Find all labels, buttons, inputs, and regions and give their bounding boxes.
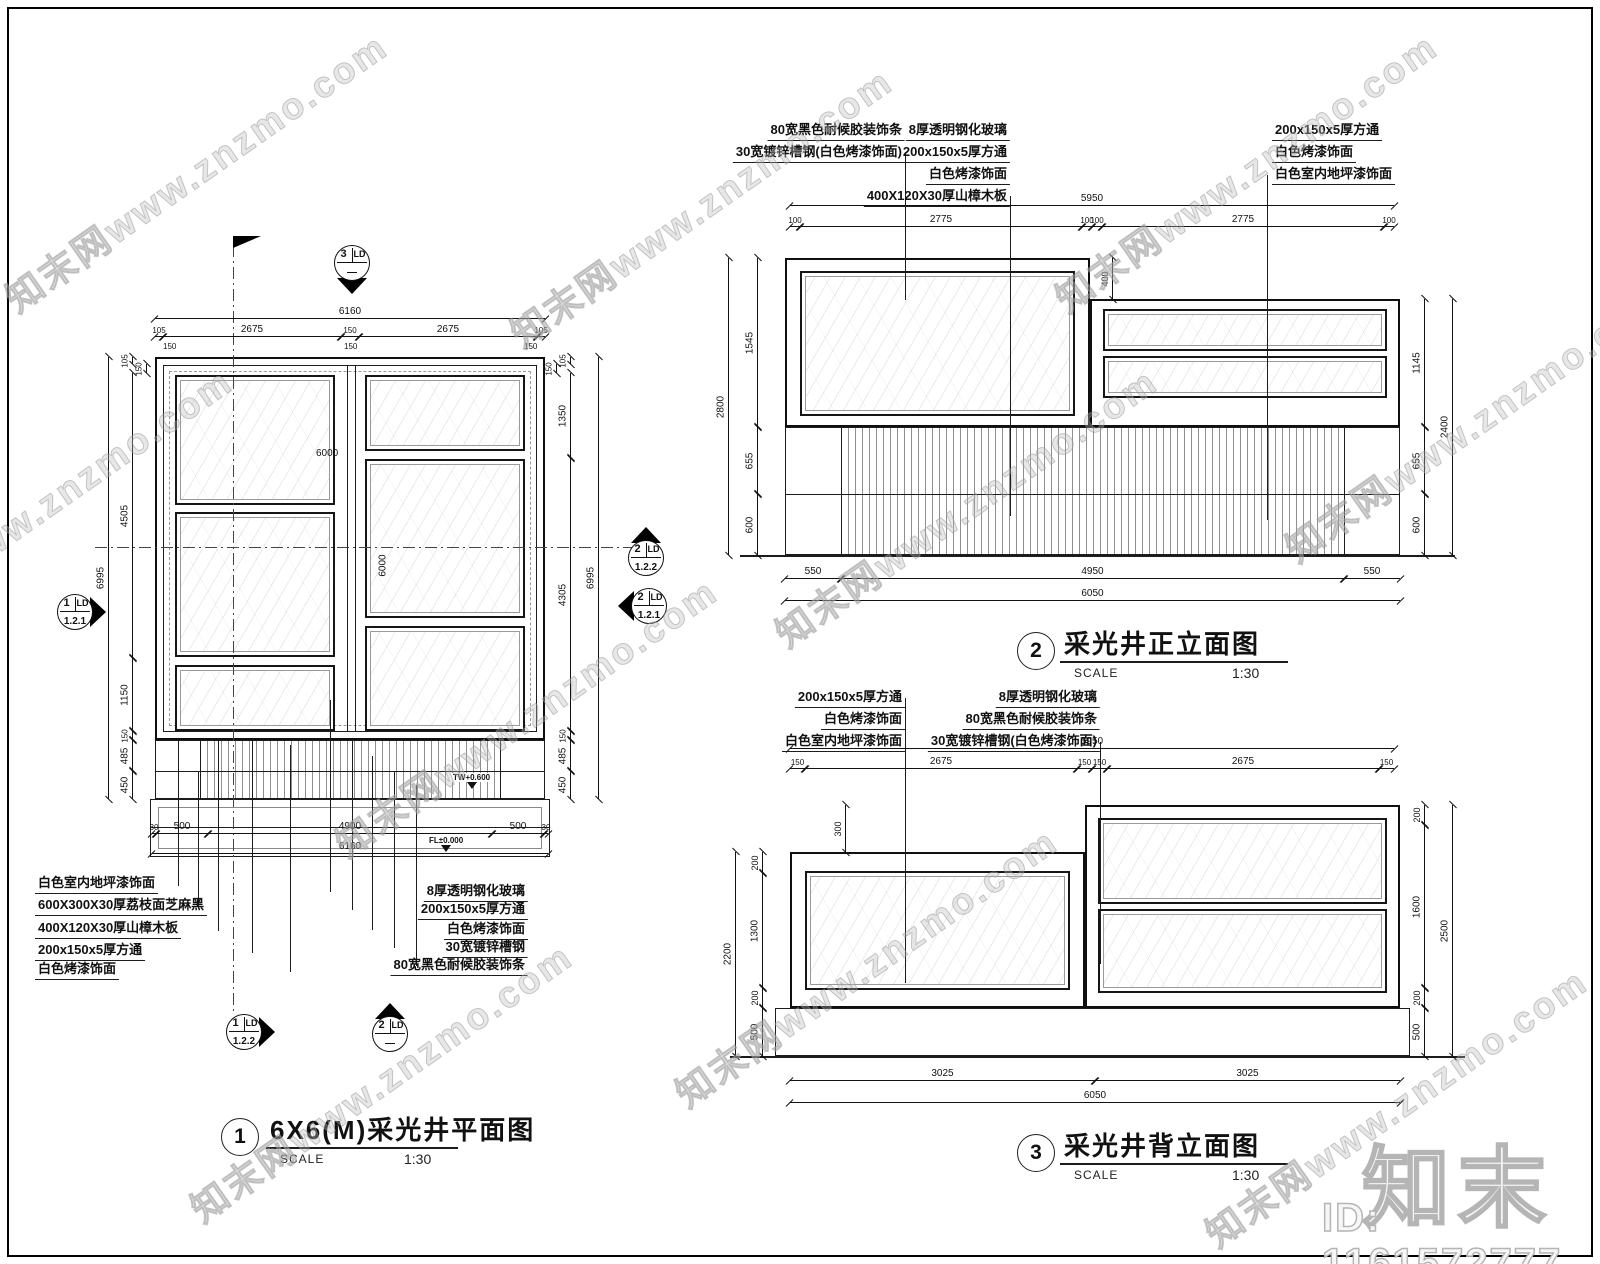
dim-text: 2500 <box>1440 919 1451 941</box>
glass-panel <box>175 512 335 657</box>
title-number-circle: 3 <box>1017 1134 1055 1172</box>
dim-text: 485 <box>558 747 569 764</box>
dim-text: 150 <box>791 758 804 767</box>
dimension-v: 1545 <box>757 258 758 427</box>
leader-line <box>355 365 356 732</box>
leader-line <box>198 771 199 908</box>
dim-text: 105 <box>534 326 547 335</box>
callout-label: 400X120X30厚山樟木板 <box>35 917 181 939</box>
dimension-h: 2675 <box>359 336 537 337</box>
level-triangle-icon <box>441 845 451 852</box>
dimension-v: 2400 <box>1452 299 1453 555</box>
dimension-h: 500 <box>492 833 544 834</box>
callout-label: 30宽镀锌槽钢(白色烤漆饰面) <box>733 141 905 163</box>
dim-text: 500 <box>750 1024 761 1041</box>
annotation-text: 6000 <box>316 448 338 459</box>
dimension-v: 200 <box>762 852 763 873</box>
dim-text: 150 <box>135 362 144 375</box>
callout-label: 400X120X30厚山樟木板 <box>864 185 1010 207</box>
callout-label: 600X300X30厚荔枝面芝麻黑 <box>35 894 207 916</box>
scale-label: SCALE <box>280 1152 324 1166</box>
dim-text: 150 <box>1078 758 1091 767</box>
marker-circle: 2LD— <box>372 1016 408 1052</box>
callout-label: 白色室内地坪漆饰面 <box>1272 163 1395 185</box>
leader-line <box>200 740 201 799</box>
leader-line <box>290 745 291 972</box>
dim-text: 4505 <box>120 504 131 526</box>
scale-label: SCALE <box>1074 666 1118 680</box>
level-marker: FL±0.000 <box>428 836 464 852</box>
outline-rect <box>155 740 545 799</box>
dimension-v: 2200 <box>735 852 736 1056</box>
dim-text: 150 <box>343 326 356 335</box>
title-number-circle: 1 <box>221 1118 259 1156</box>
dimension-h: 4950 <box>841 578 1344 579</box>
title-underline <box>1060 661 1288 663</box>
glass-panel <box>805 871 1070 990</box>
section-marker: 1LD1.2.1 <box>57 594 93 630</box>
leader-line <box>252 740 253 953</box>
outline-rect <box>775 1008 1410 1056</box>
dim-text: 2775 <box>1232 214 1254 225</box>
dim-text: 655 <box>745 452 756 469</box>
dim-text: 100 <box>1090 216 1103 225</box>
leader-line <box>841 427 842 555</box>
scale-value: 1:30 <box>1232 665 1259 681</box>
callout-label: 8厚透明钢化玻璃 <box>906 119 1010 141</box>
dimension-v: 600 <box>757 494 758 555</box>
dimension-v: 2800 <box>728 258 729 555</box>
dim-text: 2675 <box>241 324 263 335</box>
dim-text: 2200 <box>723 943 734 965</box>
dim-text: 500 <box>510 821 527 832</box>
dimension-h: 2775 <box>800 226 1082 227</box>
glass-panel <box>1103 309 1387 351</box>
callout-label: 白色烤漆饰面 <box>821 708 905 730</box>
dimension-v: 6995 <box>598 357 599 799</box>
dimension-h: 550 <box>1344 578 1400 579</box>
level-marker: TW+0.600 <box>452 773 491 789</box>
dim-text: 400 <box>1100 271 1110 286</box>
glass-panel <box>365 626 525 731</box>
callout-label: 80宽黑色耐候胶装饰条 <box>391 954 528 976</box>
section-marker: 2LD1.2.2 <box>628 540 664 576</box>
dimension-v: 150 <box>556 364 557 373</box>
dimension-v: 450 <box>570 771 571 799</box>
dimension-v: 1350 <box>570 373 571 458</box>
dim-text: 6995 <box>586 567 597 589</box>
drawing-title: 采光井背立面图 <box>1064 1126 1260 1163</box>
dim-text: 1150 <box>120 684 131 706</box>
flag-icon <box>233 236 261 248</box>
dim-text: 150 <box>1380 758 1393 767</box>
dimension-v: 105 <box>132 357 133 364</box>
dim-text: 2675 <box>1232 756 1254 767</box>
callout-label: 30宽镀锌槽钢(白色烤漆饰面) <box>928 730 1100 752</box>
dim-text: 485 <box>120 747 131 764</box>
glass-panel <box>800 271 1075 416</box>
dimension-h: 30 <box>544 833 548 834</box>
title-number-circle: 2 <box>1017 632 1055 670</box>
dim-text: 2675 <box>437 324 459 335</box>
outline-rect <box>785 427 1400 555</box>
dim-text: 2675 <box>930 756 952 767</box>
dim-text: 4900 <box>339 821 361 832</box>
dimension-v: 655 <box>1424 427 1425 494</box>
title-underline <box>1060 1163 1288 1165</box>
leader-line <box>1010 196 1011 516</box>
centerline <box>95 547 645 548</box>
dim-text: 4950 <box>1081 566 1103 577</box>
callout-label: 白色室内地坪漆饰面 <box>782 730 905 752</box>
marker-circle: 3LD— <box>334 245 370 281</box>
section-marker: 2LD— <box>372 1016 408 1052</box>
section-marker: 2LD1.2.1 <box>631 588 667 624</box>
dim-text: 30 <box>542 823 551 832</box>
dim-text: 150 <box>1093 758 1106 767</box>
dimension-v: 500 <box>762 1008 763 1056</box>
dimension-v: 1150 <box>132 658 133 731</box>
glass-panel <box>365 459 525 618</box>
dim-text: 100 <box>788 216 801 225</box>
dim-text: 6160 <box>339 306 361 317</box>
callout-label: 8厚透明钢化玻璃 <box>996 686 1100 708</box>
callout-label: 80宽黑色耐候胶装饰条 <box>768 119 905 141</box>
dimension-v: 1145 <box>1424 299 1425 427</box>
dim-text: 300 <box>833 821 843 836</box>
dim-text: 6160 <box>339 841 361 852</box>
dimension-v: 400 <box>1112 258 1113 299</box>
leader-line <box>1100 742 1101 964</box>
marker-circle: 1LD1.2.1 <box>57 594 93 630</box>
glass-panel <box>1103 356 1387 398</box>
dim-text: 6050 <box>1081 588 1103 599</box>
leader-line <box>178 740 179 886</box>
drawing-title: 6X6(M)采光井平面图 <box>270 1110 535 1147</box>
leader-line <box>155 771 545 772</box>
section-marker: 1LD1.2.2 <box>226 1014 262 1050</box>
dim-text: 1300 <box>750 919 761 941</box>
dim-text: 2400 <box>1440 416 1451 438</box>
dimension-h: 3025 <box>1095 1080 1400 1081</box>
leader-line <box>416 785 417 966</box>
dim-text: 3025 <box>1236 1068 1258 1079</box>
dimension-h: 6160 <box>155 318 545 319</box>
callout-label: 200x150x5厚方通 <box>418 898 528 920</box>
dimension-h: 550 <box>785 578 841 579</box>
dimension-v: 2500 <box>1452 805 1453 1056</box>
dimension-h: 100 <box>1384 226 1394 227</box>
callout-label: 200x150x5厚方通 <box>795 686 905 708</box>
dimension-v: 655 <box>757 427 758 494</box>
dimension-v: 500 <box>1424 1008 1425 1056</box>
dimension-h: 2775 <box>1102 226 1384 227</box>
dimension-v: 4305 <box>570 458 571 731</box>
callout-label: 200x150x5厚方通 <box>900 141 1010 163</box>
dimension-v: 1600 <box>1424 825 1425 988</box>
glass-panel <box>1098 818 1387 904</box>
dim-text: 105 <box>121 354 130 367</box>
dim-text: 600 <box>1412 516 1423 533</box>
dim-text: 500 <box>1412 1024 1423 1041</box>
annotation-text: 150 <box>163 342 176 351</box>
dim-text: 1545 <box>745 331 756 353</box>
dimension-h: 105 <box>537 336 545 337</box>
section-marker: 3LD— <box>334 245 370 281</box>
dim-text: 2800 <box>716 395 727 417</box>
title-underline <box>266 1147 458 1149</box>
dim-text: 2775 <box>930 214 952 225</box>
marker-circle: 1LD1.2.2 <box>226 1014 262 1050</box>
dim-text: 4305 <box>558 583 569 605</box>
dimension-h: 3025 <box>790 1080 1095 1081</box>
dim-text: 6050 <box>1084 1090 1106 1101</box>
leader-line <box>785 494 1400 495</box>
centerline <box>233 245 234 1012</box>
dim-text: 200 <box>750 855 760 870</box>
callout-label: 白色室内地坪漆饰面 <box>35 872 158 894</box>
dim-text: 500 <box>174 821 191 832</box>
dimension-v: 105 <box>570 357 571 364</box>
dim-text: 3025 <box>931 1068 953 1079</box>
dimension-v: 600 <box>1424 494 1425 555</box>
leader-line <box>218 740 219 931</box>
dim-text: 1600 <box>1412 895 1423 917</box>
dim-text: 600 <box>745 516 756 533</box>
dimension-v: 6995 <box>108 357 109 799</box>
leader-line <box>500 740 501 799</box>
callout-label: 白色烤漆饰面 <box>1272 141 1356 163</box>
glass-panel <box>365 375 525 451</box>
dim-text: 450 <box>120 777 131 794</box>
drawing-title: 采光井正立面图 <box>1064 624 1260 661</box>
dimension-v: 485 <box>132 740 133 771</box>
annotation-text: 150 <box>344 342 357 351</box>
dim-text: 450 <box>558 777 569 794</box>
leader-line <box>347 365 348 732</box>
scale-label: SCALE <box>1074 1168 1118 1182</box>
scale-value: 1:30 <box>1232 1167 1259 1183</box>
level-triangle-icon <box>467 782 477 789</box>
leader-line <box>1344 427 1345 555</box>
glass-panel <box>175 375 335 505</box>
dimension-v: 1300 <box>762 873 763 988</box>
glass-panel <box>1098 909 1387 993</box>
dim-text: 655 <box>1412 452 1423 469</box>
leader-line <box>730 1056 1465 1058</box>
dimension-h: 2675 <box>163 336 341 337</box>
dim-text: 550 <box>805 566 822 577</box>
leader-line <box>394 771 395 948</box>
leader-line <box>740 555 1455 557</box>
glass-panel <box>175 665 335 731</box>
dimension-v: 300 <box>845 805 846 852</box>
callout-label: 白色烤漆饰面 <box>926 163 1010 185</box>
dim-text: 100 <box>1382 216 1395 225</box>
dim-text: 1145 <box>1412 352 1423 374</box>
callout-label: 200x150x5厚方通 <box>1272 119 1382 141</box>
dim-text: 5950 <box>1081 193 1103 204</box>
dimension-h: 6160 <box>152 853 548 854</box>
dimension-v: 4505 <box>132 373 133 658</box>
leader-line <box>372 756 373 930</box>
annotation-text: 6000 <box>378 554 389 576</box>
dimension-h: 6050 <box>790 1102 1400 1103</box>
dim-text: 6995 <box>96 567 107 589</box>
marker-circle: 2LD1.2.1 <box>631 588 667 624</box>
scale-value: 1:30 <box>404 1151 431 1167</box>
dimension-h: 6050 <box>785 600 1400 601</box>
marker-circle: 2LD1.2.2 <box>628 540 664 576</box>
callout-label: 白色烤漆饰面 <box>35 958 119 980</box>
annotation-text: 150 <box>524 342 537 351</box>
dimension-h: 500 <box>156 833 208 834</box>
dim-text: 550 <box>1364 566 1381 577</box>
dimension-v: 150 <box>146 364 147 373</box>
dimension-v: 450 <box>132 771 133 799</box>
dimension-h: 2675 <box>805 768 1077 769</box>
leader-line <box>905 698 906 983</box>
leader-line <box>330 700 331 892</box>
dimension-h: 4900 <box>208 833 492 834</box>
dimension-h: 2675 <box>1107 768 1379 769</box>
dim-text: 150 <box>545 362 554 375</box>
callout-label: 80宽黑色耐候胶装饰条 <box>963 708 1100 730</box>
dimension-v: 485 <box>570 740 571 771</box>
dim-text: 1350 <box>558 404 569 426</box>
dimension-h: 150 <box>1379 768 1394 769</box>
cad-sheet: 知末 ID: 1161572777 6160105267515026751053… <box>0 0 1600 1264</box>
